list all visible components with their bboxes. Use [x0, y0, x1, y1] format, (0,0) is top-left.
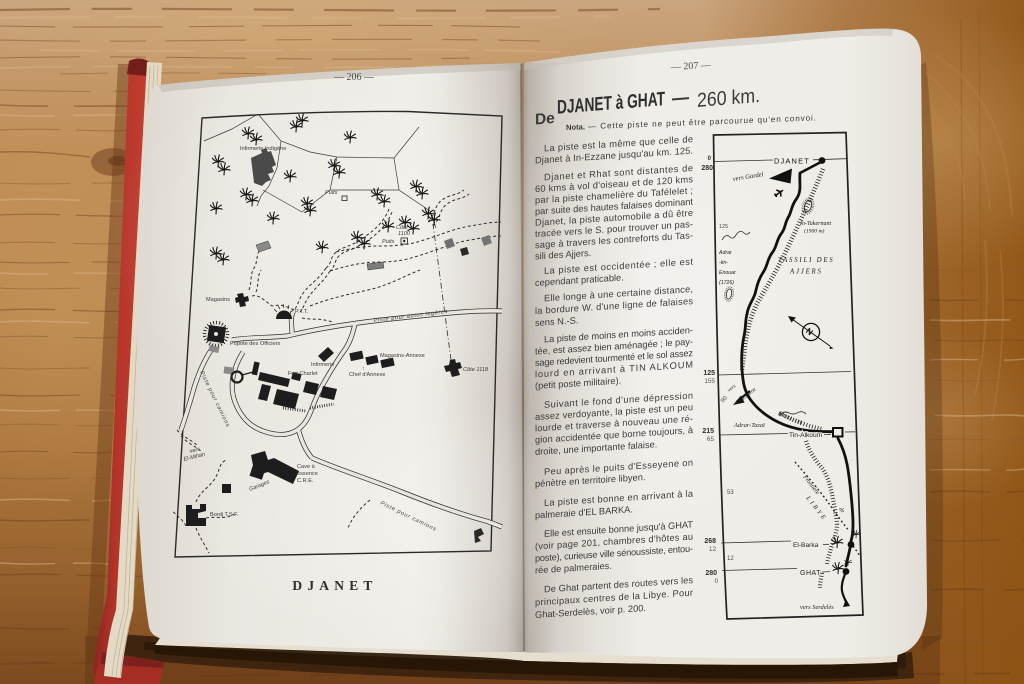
svg-text:Puits: Puits: [382, 239, 395, 245]
svg-text:1100: 1100: [398, 231, 411, 237]
svg-text:vers Serdelès: vers Serdelès: [800, 604, 834, 611]
svg-text:El-Barka: El-Barka: [793, 542, 819, 549]
svg-text:65: 65: [707, 436, 715, 443]
svg-text:125: 125: [719, 224, 728, 230]
svg-text:Cave à: Cave à: [297, 464, 316, 470]
svg-text:-tin-: -tin-: [719, 260, 728, 266]
svg-text:C.R.E.: C.R.E.: [297, 478, 314, 484]
svg-text:Chef d'Annexe: Chef d'Annexe: [349, 372, 386, 378]
svg-text:215: 215: [702, 428, 714, 435]
svg-text:Popote des Officiers: Popote des Officiers: [230, 341, 280, 347]
svg-text:268: 268: [704, 538, 716, 545]
svg-text:GHAT: GHAT: [800, 570, 821, 577]
svg-text:125: 125: [703, 370, 715, 377]
svg-text:Magasins: Magasins: [206, 297, 230, 303]
svg-text:(1900 m): (1900 m): [804, 228, 824, 235]
svg-text:— 206 —: — 206 —: [333, 72, 375, 83]
svg-text:280: 280: [701, 165, 713, 172]
svg-text:53: 53: [727, 490, 734, 496]
svg-text:↑: ↑: [362, 366, 365, 372]
svg-text:TASSILI DES: TASSILI DES: [778, 257, 835, 264]
svg-text:Adrar-Tazaï: Adrar-Tazaï: [733, 422, 766, 429]
svg-text:Bordj T.S.F.: Bordj T.S.F.: [210, 512, 239, 518]
svg-text:Adrar: Adrar: [718, 250, 732, 256]
svg-text:Enouar: Enouar: [719, 270, 736, 276]
svg-text:DJANET: DJANET: [774, 157, 810, 166]
svg-text:Nota.: Nota.: [566, 122, 585, 132]
svg-text:essence: essence: [297, 471, 318, 477]
svg-text:Tin-Alkoum: Tin-Alkoum: [789, 432, 823, 439]
svg-text:Magasins-Annexe: Magasins-Annexe: [380, 353, 425, 359]
svg-text:Fort Charlet: Fort Charlet: [288, 371, 318, 377]
svg-text:0: 0: [714, 578, 718, 585]
svg-text:De: De: [535, 110, 555, 129]
svg-text:280: 280: [705, 570, 717, 577]
svg-text:(1726): (1726): [719, 280, 734, 286]
svg-text:P.T.T.: P.T.T.: [295, 309, 309, 315]
svg-text:Infirmerie Indigène: Infirmerie Indigène: [240, 146, 286, 152]
svg-text:Puits: Puits: [325, 190, 338, 196]
svg-text:— 207 —: — 207 —: [670, 60, 713, 73]
svg-text:In-Takernant: In-Takernant: [799, 221, 831, 227]
svg-text:12: 12: [727, 556, 734, 562]
svg-text:12: 12: [709, 546, 717, 553]
svg-text:Côte 1118: Côte 1118: [463, 367, 489, 373]
svg-text:Infirmerie: Infirmerie: [311, 362, 334, 368]
svg-text:155: 155: [704, 378, 715, 385]
svg-text:AJJERS: AJJERS: [789, 269, 823, 276]
svg-text:DJANET: DJANET: [292, 578, 377, 593]
